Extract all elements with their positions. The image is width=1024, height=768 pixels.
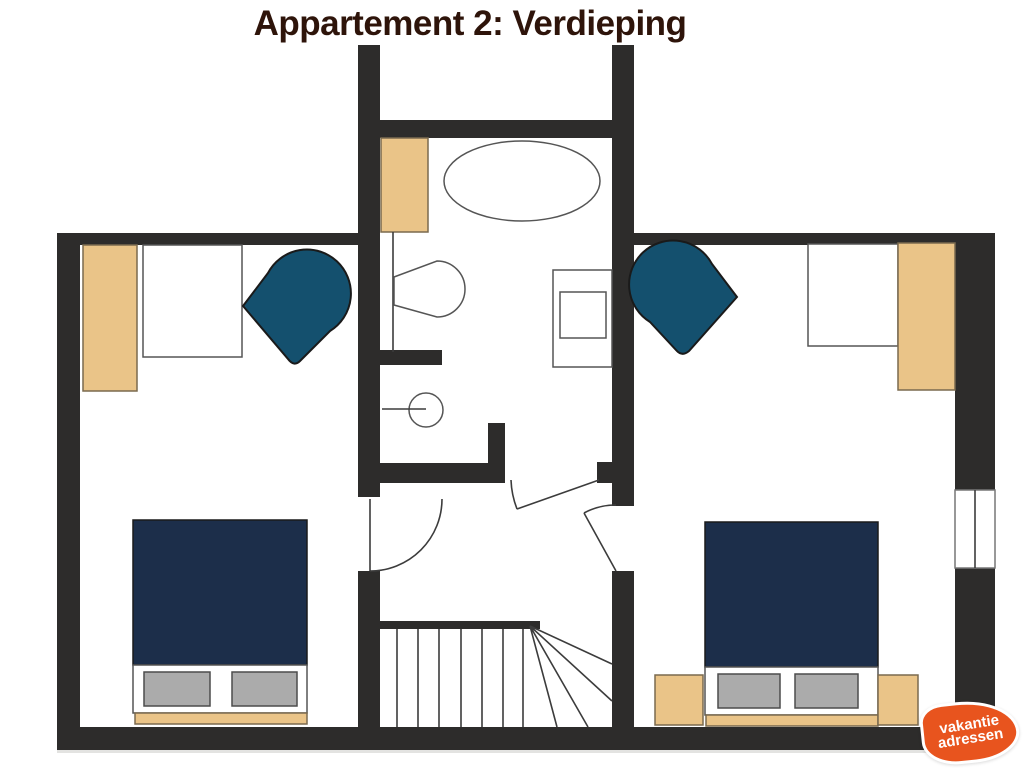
pillow-icon	[718, 674, 780, 708]
armchair-icon	[243, 250, 351, 364]
center-left-wall-upper	[358, 45, 380, 497]
pillow-icon	[232, 672, 297, 706]
bed-headboard	[706, 715, 878, 726]
bathroom-door-stub	[488, 423, 505, 465]
stair-landing-edge	[380, 621, 540, 629]
stair-treads	[397, 629, 523, 727]
pillow-icon	[144, 672, 210, 706]
bathroom-top-wall	[358, 120, 634, 138]
vanity-basin	[560, 292, 606, 338]
right-bedroom	[629, 241, 955, 726]
bathtub-icon	[444, 141, 600, 221]
plan-shadow	[57, 750, 995, 753]
table-icon	[808, 244, 898, 346]
left-outer-wall	[57, 233, 80, 750]
bathroom	[381, 138, 612, 427]
bed-headboard	[135, 713, 307, 724]
stair-winders	[530, 626, 612, 727]
floorplan-drawing	[0, 0, 1024, 768]
bed-duvet	[133, 520, 307, 665]
pillow-icon	[795, 674, 858, 708]
floorplan-page: Appartement 2: Verdieping	[0, 0, 1024, 768]
right-outer-wall-upper	[955, 233, 995, 490]
bathroom-door-jamb	[597, 462, 634, 483]
wardrobe-icon	[83, 245, 137, 391]
bed-duvet	[705, 522, 878, 667]
left-bedroom	[83, 245, 351, 724]
nightstand-icon	[655, 675, 703, 725]
wardrobe-icon	[898, 243, 955, 390]
nightstand-icon	[878, 675, 918, 725]
bathroom-partition-stub	[380, 350, 442, 365]
washbasin-icon	[409, 393, 443, 427]
door-swing-right-bedroom	[584, 505, 616, 571]
bottom-outer-wall	[57, 727, 995, 750]
door-swing-bathroom	[511, 480, 599, 509]
window-icon	[955, 490, 995, 568]
staircase-icon	[397, 626, 612, 727]
armchair-icon	[629, 241, 737, 354]
table-icon	[143, 245, 242, 357]
bathroom-bottom-wall	[380, 463, 505, 483]
toilet-icon	[394, 261, 465, 317]
center-right-wall-lower	[612, 571, 634, 727]
doors	[370, 480, 616, 571]
bathroom-cabinet-icon	[381, 138, 428, 232]
door-swing-left-bedroom	[370, 499, 442, 571]
center-left-wall-lower	[358, 571, 380, 727]
top-wall-left-bedroom	[57, 233, 380, 245]
